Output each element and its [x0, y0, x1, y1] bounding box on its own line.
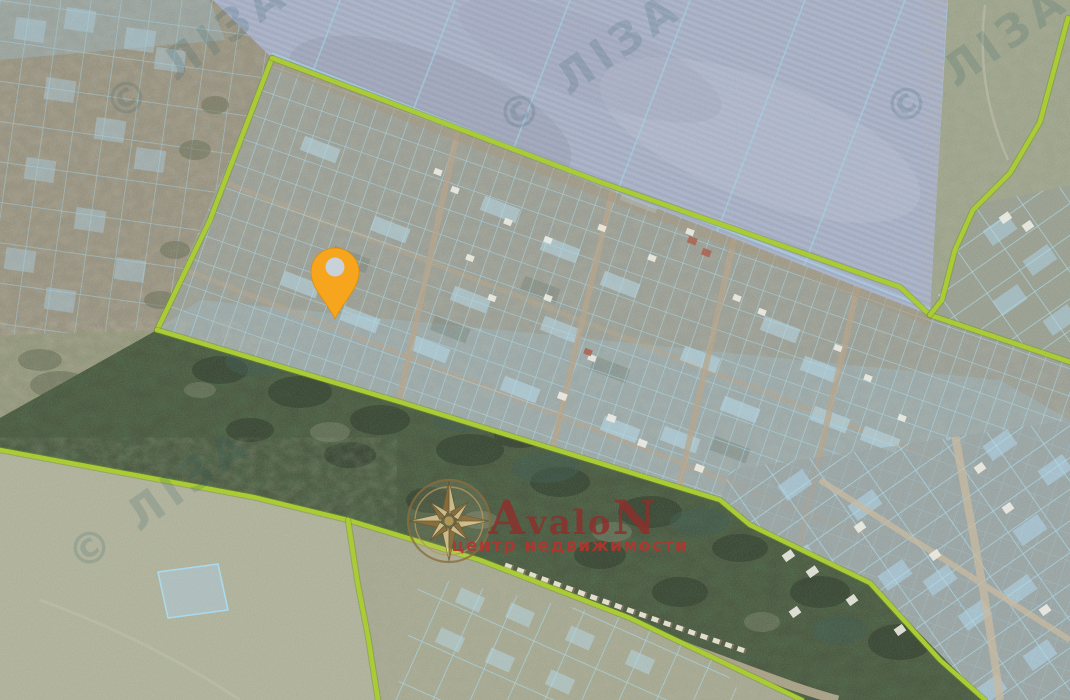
logo-subtitle: центр недвижимости — [452, 536, 689, 556]
satellite-map: © ЛІЗА© ЛІЗА© ЛІЗА© ЛІЗА AvaloN центр не… — [0, 0, 1070, 700]
pin-hole — [326, 258, 345, 277]
map-canvas[interactable]: © ЛІЗА© ЛІЗА© ЛІЗА© ЛІЗА AvaloN центр не… — [0, 0, 1070, 700]
